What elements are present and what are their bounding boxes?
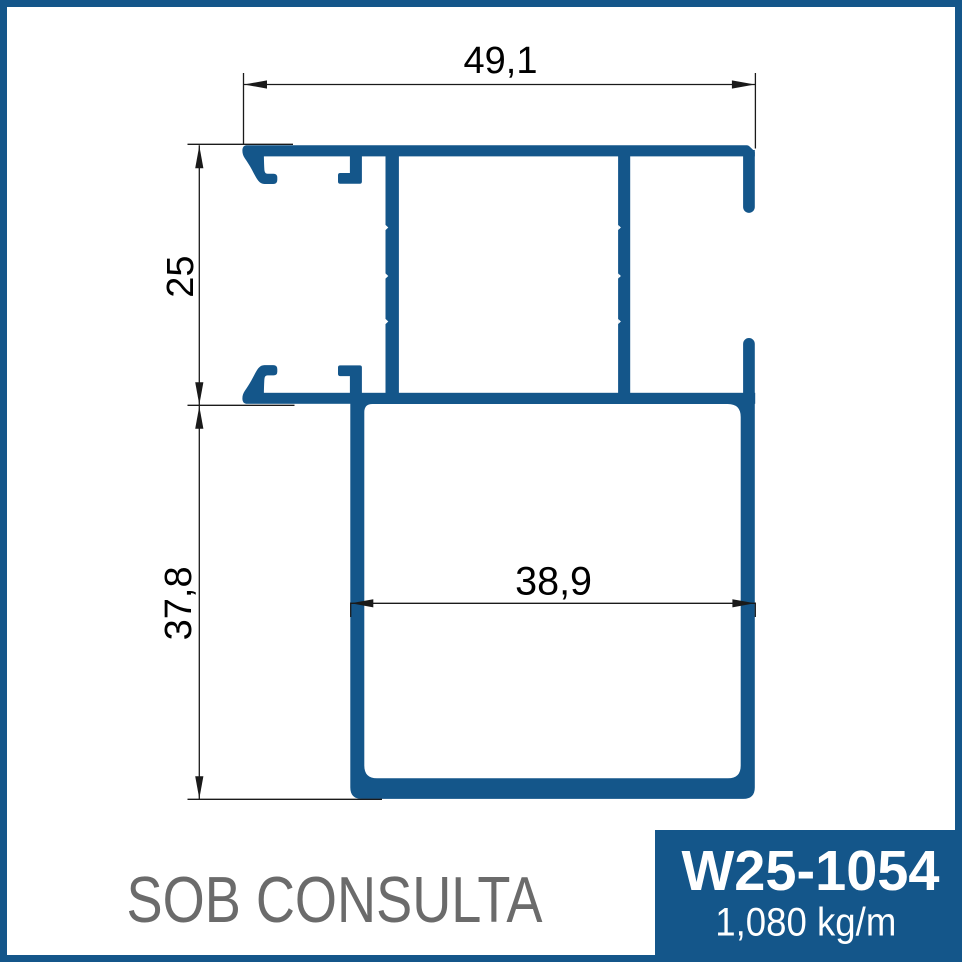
svg-text:1,080 kg/m: 1,080 kg/m	[715, 901, 896, 945]
svg-text:SOB CONSULTA: SOB CONSULTA	[127, 863, 544, 936]
svg-text:49,1: 49,1	[464, 40, 538, 82]
svg-text:W25-1054: W25-1054	[682, 839, 940, 903]
svg-text:25: 25	[160, 255, 202, 297]
svg-text:37,8: 37,8	[158, 566, 200, 640]
svg-text:38,9: 38,9	[515, 560, 592, 604]
